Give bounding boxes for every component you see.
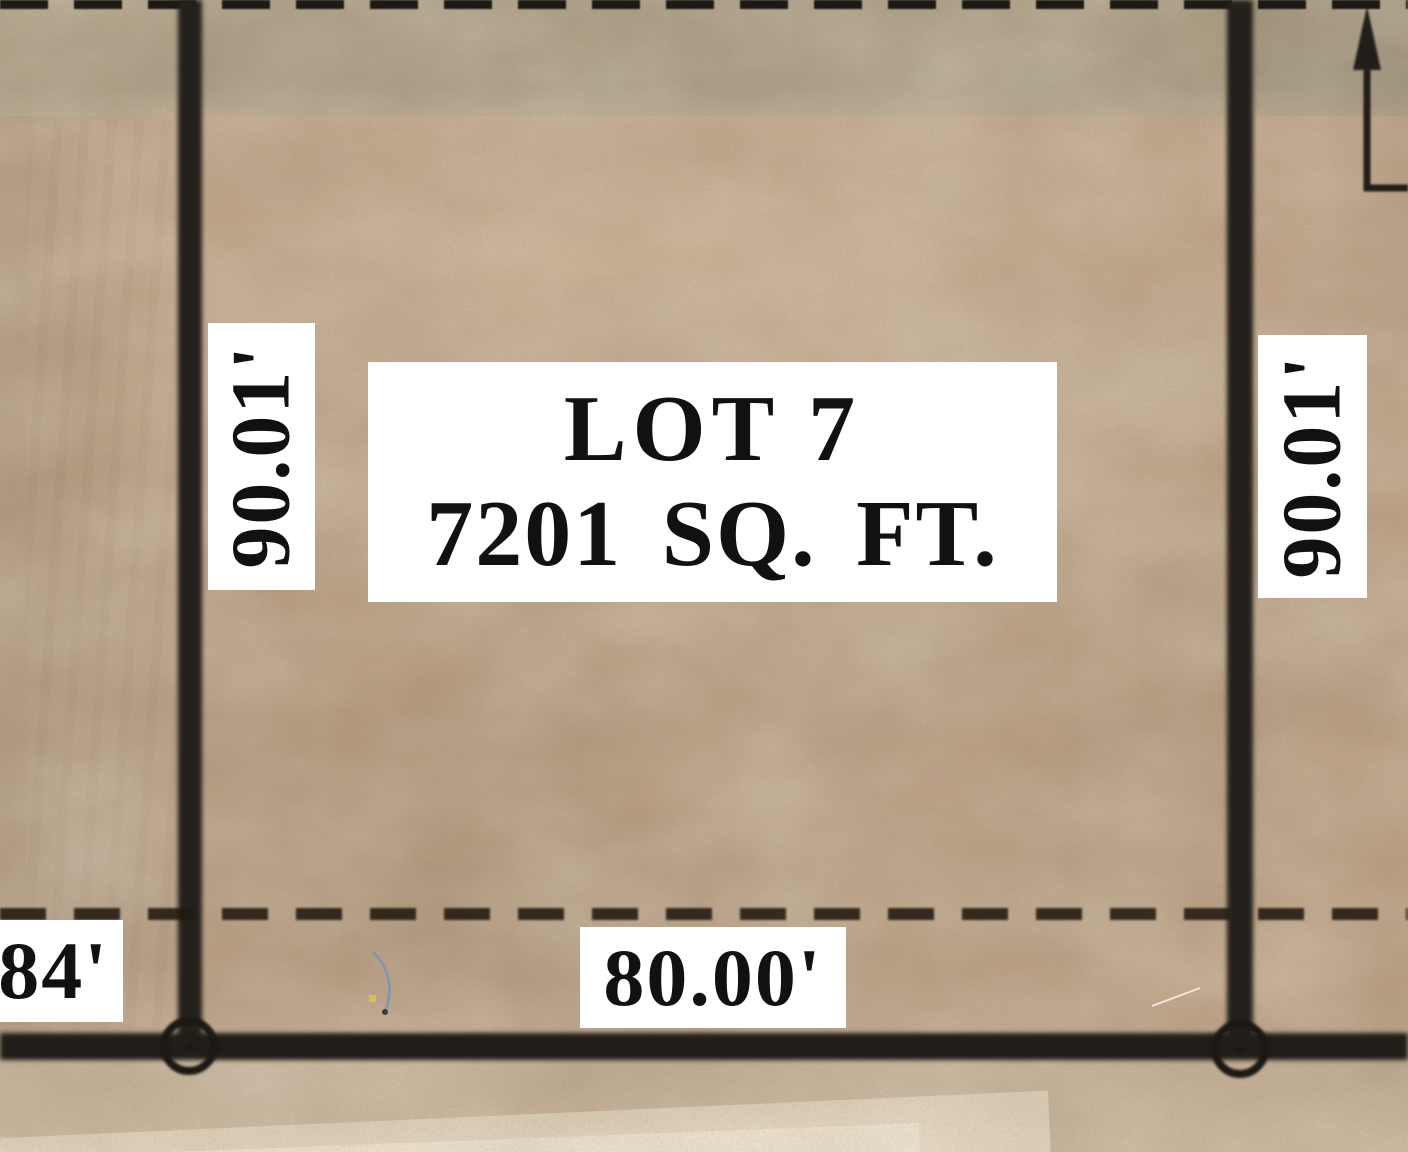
lot-name: LOT 7 [564,377,861,482]
east-boundary-line [1227,0,1253,1052]
south-dimension-label: 80.00' [580,927,846,1028]
survey-marker-dot [186,1043,193,1050]
adjacent-dimension-value: 84' [0,924,109,1018]
north-dashed-boundary-line [0,0,1408,9]
lot-info-label: LOT 7 7201 SQ. FT. [368,362,1057,602]
scrub-noise-texture [0,0,1408,116]
scrub-vegetation-strip [0,0,1408,116]
plat-map: LOT 7 7201 SQ. FT. 90.01' 90.01' 80.00' … [0,0,1408,1152]
lot-area: 7201 SQ. FT. [426,482,999,587]
west-boundary-line [178,0,202,1050]
east-dimension-value: 90.01' [1264,354,1361,578]
survey-marker-dot [1237,1046,1244,1053]
west-dimension-label: 90.01' [208,323,315,590]
adjacent-dimension-label-partial: 84' [0,920,123,1022]
survey-marker-southeast [1211,1020,1269,1078]
setback-dashed-line [0,908,1408,920]
tire-track-texture [26,120,176,1030]
survey-marker-southwest [160,1017,218,1075]
south-dimension-value: 80.00' [603,931,822,1025]
east-dimension-label: 90.01' [1258,335,1367,598]
west-dimension-value: 90.01' [213,344,310,568]
